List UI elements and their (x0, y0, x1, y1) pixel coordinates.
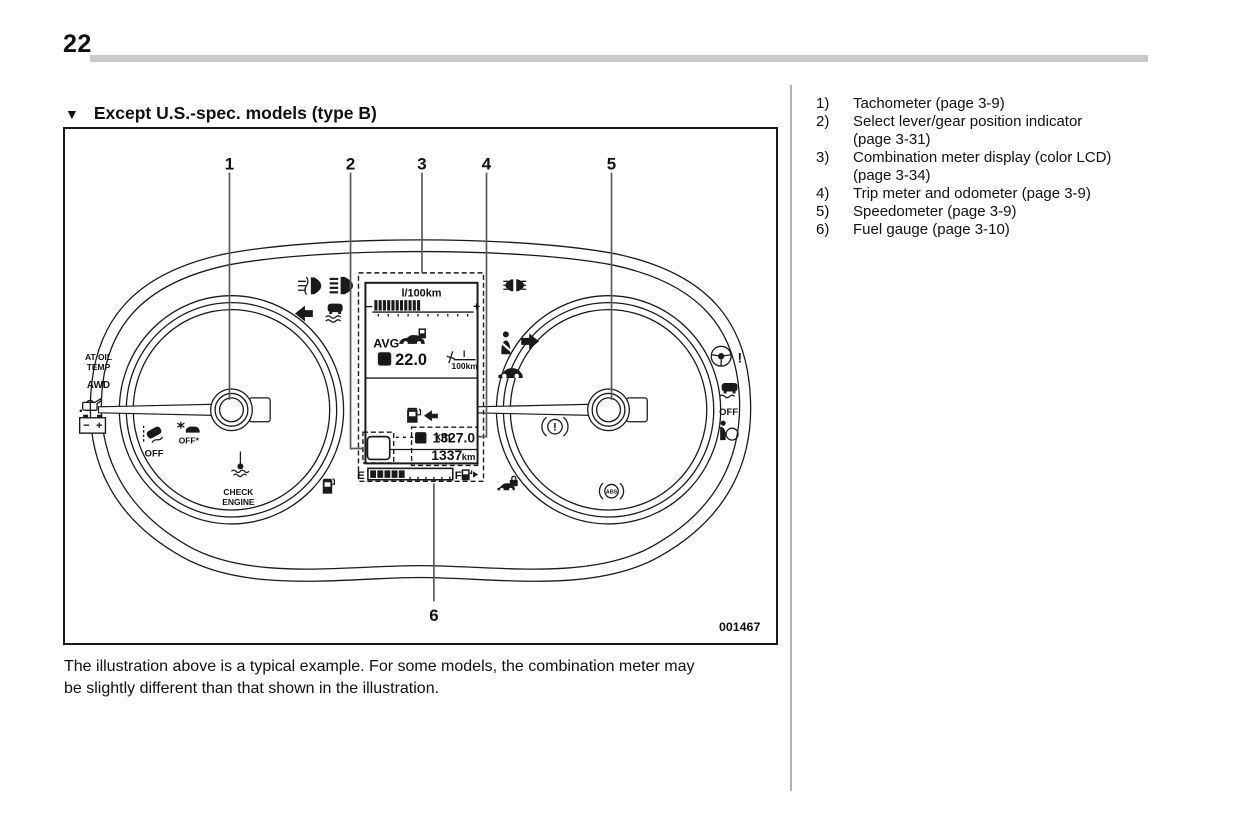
vdc-off-label: OFF (145, 447, 164, 458)
figure-box: AT OIL TEMP AWD OFF OFF* CHECK ENGINE (63, 127, 778, 645)
odometer-unit: km (462, 451, 476, 462)
caption-line-1: The illustration above is a typical exam… (64, 656, 789, 678)
callout-6: 6 (429, 606, 438, 625)
at-oil-temp-label2: TEMP (87, 362, 111, 372)
check-engine-label2: ENGINE (222, 497, 255, 507)
lcd-avg-value: 22.0 (395, 351, 427, 369)
fuel-filler-side-arrow (473, 471, 478, 477)
lcd-bar-plus: + (473, 300, 480, 314)
traction-control-icon (326, 304, 343, 323)
vdc-off-icon (144, 426, 165, 444)
lcd-avg-unit-den: 100km (452, 361, 478, 371)
legend-item-fuel-gauge: 6) Fuel gauge (page 3-10) (816, 221, 1236, 239)
security-icon (497, 476, 517, 491)
battery-icon (80, 415, 106, 433)
section-heading: ▼ Except U.S.-spec. models (type B) (65, 103, 377, 124)
figure-caption: The illustration above is a typical exam… (64, 656, 789, 700)
check-engine-label: CHECK (223, 487, 253, 497)
awd-label: AWD (87, 380, 110, 391)
coolant-temp-icon (231, 451, 248, 476)
lcd-economy-unit: l/100km (401, 288, 441, 300)
turn-left-icon (295, 306, 313, 322)
legend-item-combination-meter: 3) Combination meter display (color LCD)… (816, 149, 1236, 185)
header-rule (90, 55, 1148, 62)
fuel-full-label: F (455, 470, 462, 482)
abs-label: ABS (606, 489, 618, 495)
abs-icon: ABS (599, 483, 623, 499)
brake-warning-mark: ! (553, 422, 557, 434)
odometer-value: 1337 (431, 447, 462, 463)
odometer-selector: B (418, 433, 424, 443)
callout-4: 4 (482, 155, 492, 174)
high-beam-icon (330, 277, 353, 294)
legend-item-speedometer: 5) Speedometer (page 3-9) (816, 203, 1236, 221)
at-oil-temp-label: AT OIL (85, 352, 112, 362)
column-divider (790, 85, 792, 791)
lcd-avg-label: AVG (373, 336, 399, 350)
page-number: 22 (63, 30, 92, 59)
traction-off-label: OFF (719, 406, 738, 417)
fuel-empty-label: E (357, 470, 365, 482)
callout-2: 2 (346, 155, 355, 174)
lcd-avg-unit-num: l (463, 348, 466, 359)
tachometer-gauge (99, 296, 344, 524)
section-title: Except U.S.-spec. models (type B) (94, 103, 377, 124)
fuel-pump-icon (323, 479, 335, 494)
fog-light-icon (298, 277, 321, 295)
callout-1: 1 (225, 155, 234, 174)
brake-warning-icon: ! (542, 417, 568, 436)
steering-warning-mark: ! (738, 350, 743, 366)
cluster-illustration: AT OIL TEMP AWD OFF OFF* CHECK ENGINE (65, 129, 776, 643)
caption-line-2: be slightly different than that shown in… (64, 678, 789, 700)
legend-list: 1) Tachometer (page 3-9) 2) Select lever… (816, 95, 1236, 239)
steering-warning-icon (711, 346, 731, 366)
callout-3: 3 (417, 155, 426, 174)
lcd-trip-selector: B (381, 355, 389, 366)
callout-5: 5 (607, 155, 616, 174)
trip-value: 1327.0 (433, 430, 476, 446)
fuel-gauge: E F (357, 468, 478, 481)
legend-item-tachometer: 1) Tachometer (page 3-9) (816, 95, 1236, 113)
legend-item-trip-odometer: 4) Trip meter and odometer (page 3-9) (816, 185, 1236, 203)
traction-off-icon (720, 383, 738, 398)
fuel-gauge-pump-icon (462, 469, 472, 480)
precollision-off-label: OFF* (179, 436, 200, 446)
airbag-icon (720, 421, 738, 440)
seatbelt-icon (500, 331, 511, 354)
section-marker-icon: ▼ (65, 106, 79, 122)
figure-code: 001467 (719, 620, 760, 634)
lcd-bar-minus: − (366, 300, 373, 314)
legend-item-select-lever: 2) Select lever/gear position indicator … (816, 113, 1236, 149)
precollision-off-icon (177, 422, 199, 433)
tail-light-icon (503, 279, 526, 291)
